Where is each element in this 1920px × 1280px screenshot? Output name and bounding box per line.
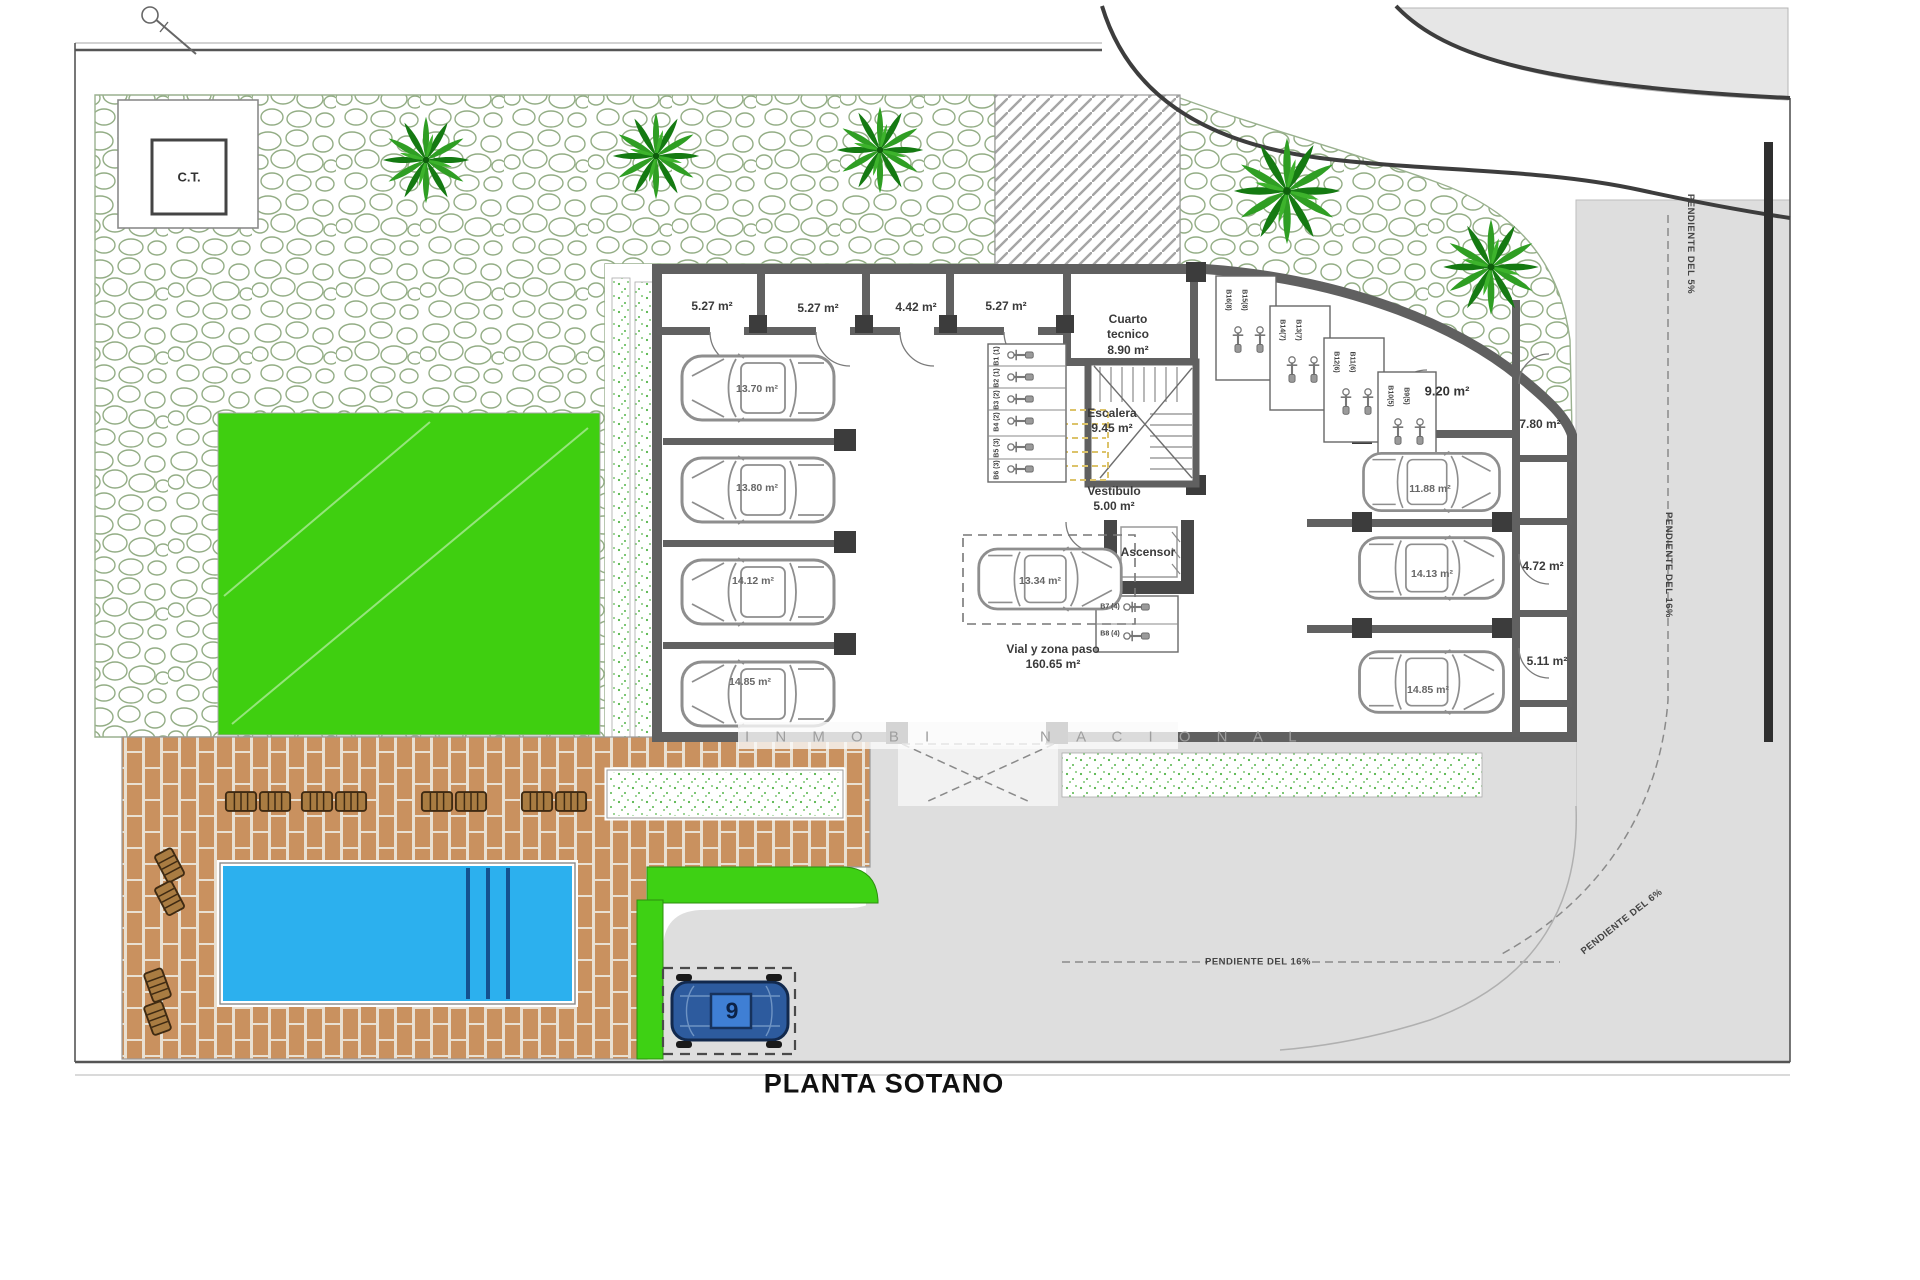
moto-space-label: B14(7) [1279,319,1286,340]
storage-room-label: 5.27 m² [985,300,1026,312]
moto-space-label: B10(5) [1387,385,1394,406]
moto-space-label: B13(7) [1295,319,1302,340]
moto-space-label: B7 (4) [1100,604,1119,611]
moto-space-label: B11(6) [1349,351,1356,372]
moto-space-label: B12(6) [1333,351,1340,372]
streetlight-icon [142,7,196,54]
cuarto-tecnico-label: Cuarto [1109,313,1148,325]
cuarto-tecnico-label: tecnico [1107,328,1149,340]
slope-label: PENDIENTE DEL 16% [1205,957,1311,967]
moto-space-label: B3 (2) [994,390,1001,409]
site-plan: C.T. 5.27 m² 5.27 m² 4.42 m² 5.27 m² Cua… [0,0,1920,1280]
ascensor-label: Ascensor [1121,546,1176,558]
parking-space-label: 14.85 m² [729,677,771,688]
swimming-pool [220,863,575,1004]
entrance-space-number: 9 [726,998,739,1025]
cuarto-tecnico-area: 8.90 m² [1107,344,1148,356]
walkway-bottom-right [1062,753,1482,797]
moto-space-label: B4 (2) [994,412,1001,431]
side-room-label: 5.11 m² [1527,655,1568,667]
storage-room-label: 5.27 m² [691,300,732,312]
vestibulo-label: Vestibulo [1087,485,1140,497]
slope-label: PENDIENTE DEL 16% [1663,512,1673,618]
vial-label: Vial y zona paso [1006,643,1099,655]
slope-label: PENDIENTE DEL 5% [1685,194,1695,294]
parking-space-label: 11.88 m² [1409,484,1450,495]
moto-space-label: B2 (1) [994,368,1001,387]
parking-space-label: 13.70 m² [736,384,778,395]
right-boundary-wall [1764,142,1773,742]
storage-room-label: 4.42 m² [895,301,936,313]
moto-space-label: B8 (4) [1100,631,1119,638]
parking-space-label: 13.80 m² [736,483,778,494]
moto-space-label: B15(8) [1241,289,1248,310]
moto-space-label: B16(8) [1225,289,1232,310]
escalera-area: 9.45 m² [1091,422,1132,434]
transformer-enclosure [118,100,258,228]
storage-room-label: 5.27 m² [797,302,838,314]
moto-space-label: B6 (3) [994,460,1001,479]
parking-space-label: 14.85 m² [1407,685,1449,696]
side-room-label: 9.20 m² [1425,385,1470,398]
page-title: PLANTA SOTANO [764,1069,1004,1100]
vial-area: 160.65 m² [1026,658,1081,670]
corner-parcel [1398,8,1788,100]
side-room-label: 7.80 m² [1519,418,1560,430]
watermark: N A C I O N A L [1040,729,1308,746]
parking-space-label: 14.13 m² [1411,569,1453,580]
moto-space-label: B9(5) [1403,387,1410,405]
vestibulo-area: 5.00 m² [1093,500,1134,512]
watermark: I N M O B I [745,729,940,746]
hatched-area [995,95,1180,268]
moto-space-label: B1 (1) [994,346,1001,365]
moto-space-label: B5 (3) [994,438,1001,457]
parking-space-label: 14.12 m² [732,576,774,587]
lawn [218,413,600,735]
side-room-label: 4.72 m² [1522,560,1563,572]
transformer-label: C.T. [177,171,200,184]
escalera-label: Escalera [1087,407,1136,419]
parking-space-label: 13.34 m² [1019,576,1061,587]
